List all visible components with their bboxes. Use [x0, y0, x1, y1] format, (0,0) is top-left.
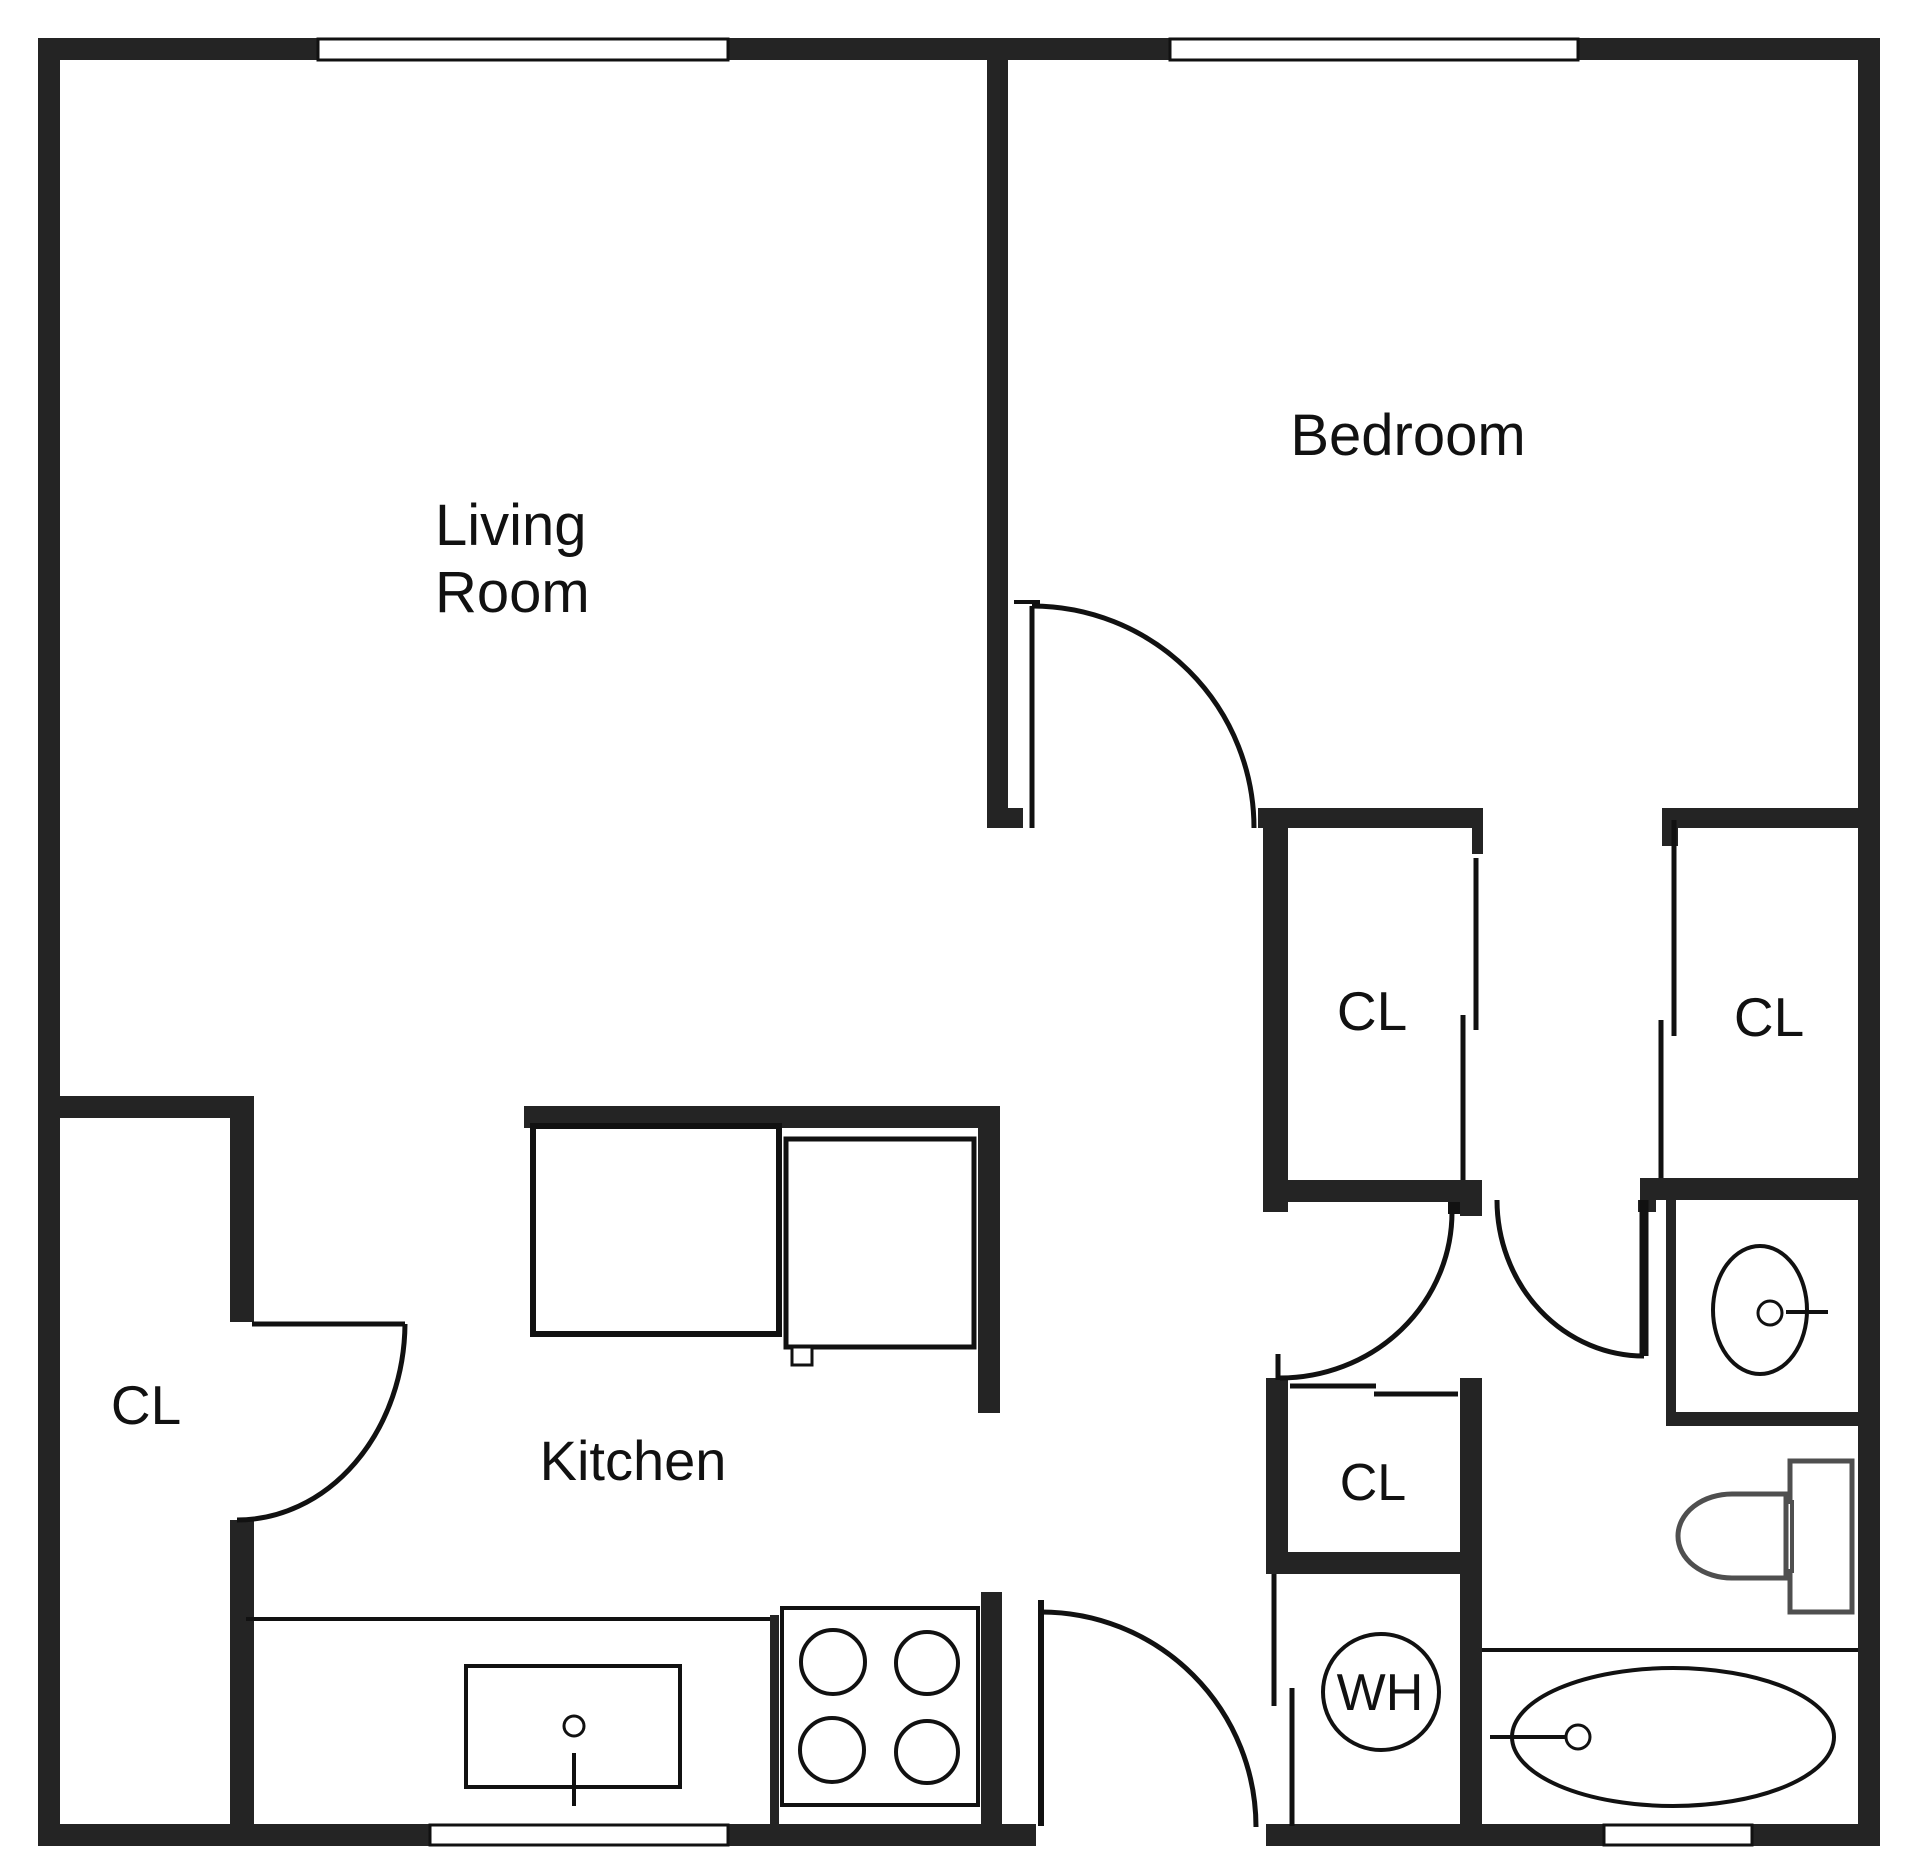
stove-burner — [800, 1718, 864, 1782]
window-icon-top-right — [1170, 39, 1578, 60]
toilet-bowl — [1678, 1494, 1786, 1578]
wall-livingroom-bedroom — [987, 60, 1008, 808]
wall-livingroom-bedroom-foot — [987, 808, 1023, 828]
closet-small-label: CL — [1340, 1454, 1406, 1512]
wall-hall-closet-left — [1263, 808, 1288, 1212]
kitchen-label: Kitchen — [540, 1429, 727, 1492]
door-swing-icon-left-closet — [237, 1324, 405, 1520]
wall-bedroom-south — [1258, 808, 1483, 828]
wall-small-closet-left — [1266, 1378, 1288, 1574]
window-icon-bottom-kitchen — [430, 1825, 728, 1845]
wall-kitchen-right-lower — [981, 1592, 1002, 1824]
stove-burner — [896, 1632, 958, 1694]
wall-left-closet-top — [56, 1096, 254, 1118]
refrigerator-handle — [792, 1347, 812, 1365]
wall-hall-closet-bottom-foot — [1460, 1180, 1482, 1216]
wall-bedroom-south-stub — [1472, 828, 1483, 854]
wall-left — [38, 38, 60, 1846]
counter-stove-divider — [770, 1615, 779, 1824]
wall-sink-room-bottom — [1666, 1412, 1858, 1426]
closet-left-label: CL — [111, 1374, 181, 1436]
counter-icon — [533, 1126, 779, 1334]
door-swing-icon-hallway — [1278, 1202, 1460, 1380]
wall-bottom-right-segment — [1266, 1824, 1880, 1846]
wall-hall-closet-bottom — [1266, 1180, 1482, 1202]
floor-plan-page: Living Room Bedroom Kitchen CL CL CL CL … — [0, 0, 1920, 1866]
exterior-walls — [38, 38, 1880, 1846]
living-room-label-line2: Room — [435, 560, 590, 625]
wall-right — [1858, 38, 1880, 1846]
wall-bathroom-top — [1640, 1178, 1880, 1200]
kitchen-sink-icon — [466, 1666, 680, 1806]
interior-walls — [56, 60, 1880, 1846]
room-labels: Living Room Bedroom Kitchen CL CL CL CL … — [111, 403, 1804, 1722]
bathroom-sink-icon — [1713, 1246, 1828, 1374]
bedroom-label: Bedroom — [1290, 403, 1525, 468]
living-room-label-line1: Living — [435, 493, 587, 558]
window-icon-bottom-bath — [1604, 1825, 1752, 1845]
windows — [318, 39, 1752, 1845]
wall-left-closet-right-upper — [230, 1096, 254, 1322]
toilet-tank — [1790, 1461, 1852, 1612]
stove-burner — [801, 1630, 865, 1694]
refrigerator-icon — [786, 1139, 974, 1347]
stove-icon — [782, 1608, 978, 1805]
stove-burner — [896, 1721, 958, 1783]
wall-sink-room-left — [1666, 1200, 1676, 1426]
door-swing-icon-entry — [1041, 1600, 1256, 1827]
closet-bedroom-label: CL — [1734, 986, 1804, 1048]
window-icon-top-left — [318, 39, 728, 60]
door-swing-icon-bedroom — [1014, 602, 1254, 828]
wall-small-closet-bottom — [1266, 1552, 1482, 1574]
water-heater-label: WH — [1337, 1664, 1424, 1722]
wall-left-closet-right-lower — [230, 1520, 254, 1824]
floor-plan: Living Room Bedroom Kitchen CL CL CL CL … — [0, 0, 1920, 1866]
wall-kitchen-right-upper — [978, 1106, 1000, 1413]
wall-top — [38, 38, 1880, 60]
bathtub-icon — [1490, 1668, 1834, 1806]
closet-hall-label: CL — [1337, 980, 1407, 1042]
door-swing-icon-bathroom — [1497, 1200, 1644, 1356]
toilet-icon — [1678, 1461, 1852, 1612]
wall-bedroom-closet-top — [1662, 808, 1880, 828]
wall-small-closet-wh-right — [1460, 1378, 1482, 1846]
